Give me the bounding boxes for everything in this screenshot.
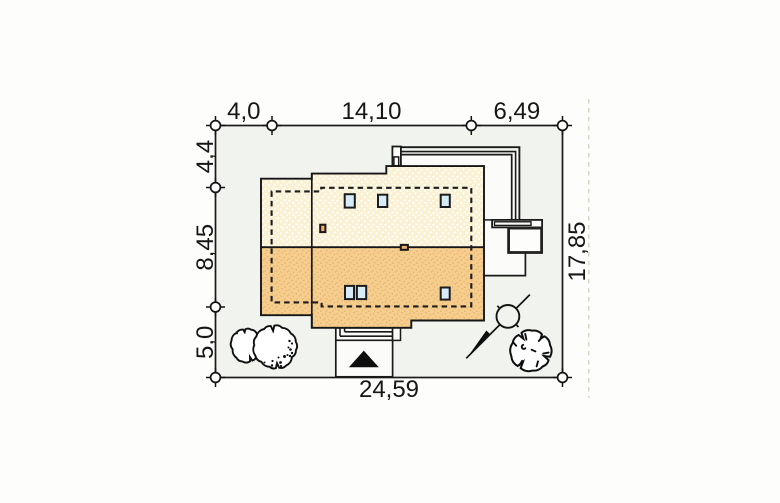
svg-text:17,85: 17,85 [564, 221, 591, 281]
svg-text:8,45: 8,45 [192, 224, 219, 271]
svg-text:14,10: 14,10 [341, 98, 401, 125]
svg-text:5,0: 5,0 [192, 326, 219, 359]
svg-text:24,59: 24,59 [359, 376, 419, 403]
svg-text:4,4: 4,4 [192, 140, 219, 173]
svg-text:6,49: 6,49 [494, 98, 541, 125]
svg-text:4,0: 4,0 [227, 98, 260, 125]
